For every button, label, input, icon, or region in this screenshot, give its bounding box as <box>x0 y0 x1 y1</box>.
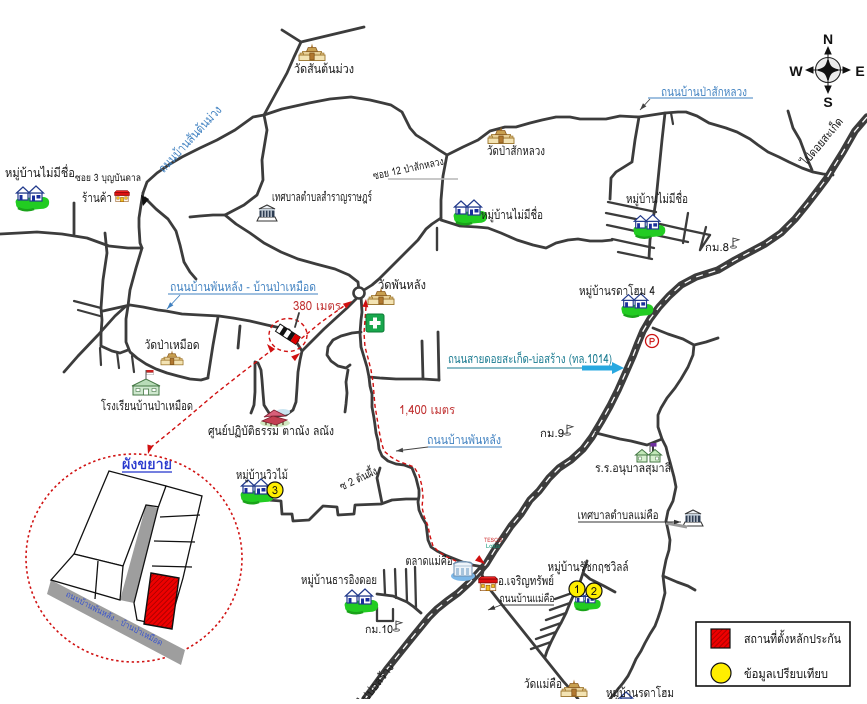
svg-text:E: E <box>855 63 864 79</box>
svg-text:W: W <box>789 63 803 79</box>
svg-text:S: S <box>823 94 832 110</box>
svg-text:N: N <box>823 31 833 47</box>
